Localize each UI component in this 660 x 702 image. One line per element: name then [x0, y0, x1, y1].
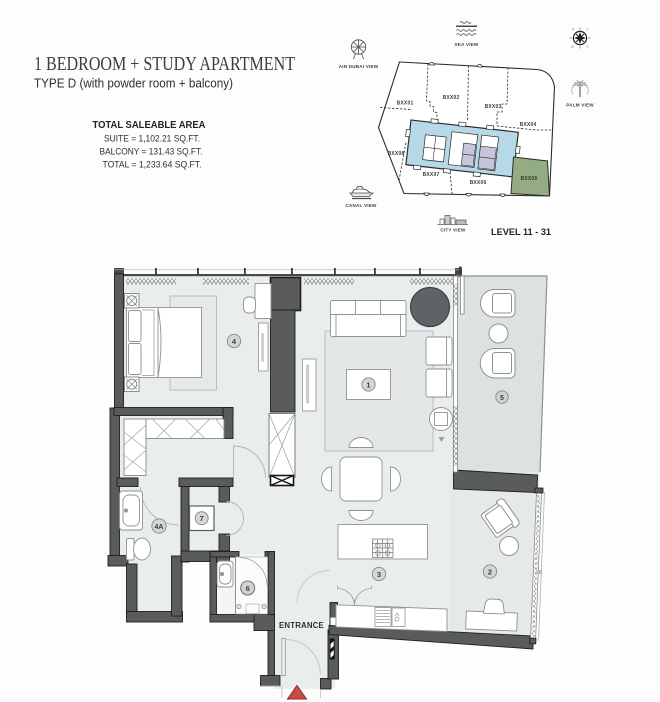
svg-text:CANAL VIEW: CANAL VIEW: [345, 203, 376, 208]
svg-text:PALM VIEW: PALM VIEW: [566, 103, 594, 108]
svg-text:BXX05: BXX05: [521, 176, 538, 182]
svg-text:CITY VIEW: CITY VIEW: [440, 228, 466, 233]
svg-text:BXX08: BXX08: [388, 151, 405, 157]
svg-text:SEA VIEW: SEA VIEW: [455, 42, 479, 47]
svg-text:3: 3: [377, 570, 381, 579]
svg-text:4A: 4A: [155, 524, 164, 531]
svg-text:BXX06: BXX06: [470, 180, 487, 186]
svg-text:TOTAL SALEABLE AREA: TOTAL SALEABLE AREA: [93, 120, 206, 131]
svg-text:BXX03: BXX03: [485, 104, 502, 110]
svg-text:LEVEL 11 - 31: LEVEL 11 - 31: [491, 227, 551, 237]
svg-text:BXX04: BXX04: [520, 122, 537, 128]
svg-text:5: 5: [500, 395, 504, 402]
svg-text:BXX01: BXX01: [397, 101, 414, 107]
svg-text:AIN DUBAI VIEW: AIN DUBAI VIEW: [339, 64, 379, 69]
svg-text:SUITE = 1,102.21 SQ.FT.: SUITE = 1,102.21 SQ.FT.: [104, 134, 200, 144]
svg-text:2: 2: [488, 568, 492, 577]
svg-text:1: 1: [366, 381, 370, 390]
svg-text:BALCONY = 131.43 SQ.FT.: BALCONY = 131.43 SQ.FT.: [100, 147, 203, 157]
svg-text:BXX02: BXX02: [443, 95, 460, 101]
svg-text:6: 6: [246, 584, 250, 593]
svg-text:ENTRANCE: ENTRANCE: [279, 621, 324, 630]
svg-text:7: 7: [200, 514, 204, 523]
svg-text:TYPE D (with powder room + bal: TYPE D (with powder room + balcony): [34, 77, 233, 91]
svg-text:TOTAL = 1,233.64 SQ.FT.: TOTAL = 1,233.64 SQ.FT.: [103, 160, 202, 170]
svg-text:BXX07: BXX07: [423, 172, 440, 178]
svg-text:1 BEDROOM + STUDY APARTMENT: 1 BEDROOM + STUDY APARTMENT: [34, 54, 295, 75]
